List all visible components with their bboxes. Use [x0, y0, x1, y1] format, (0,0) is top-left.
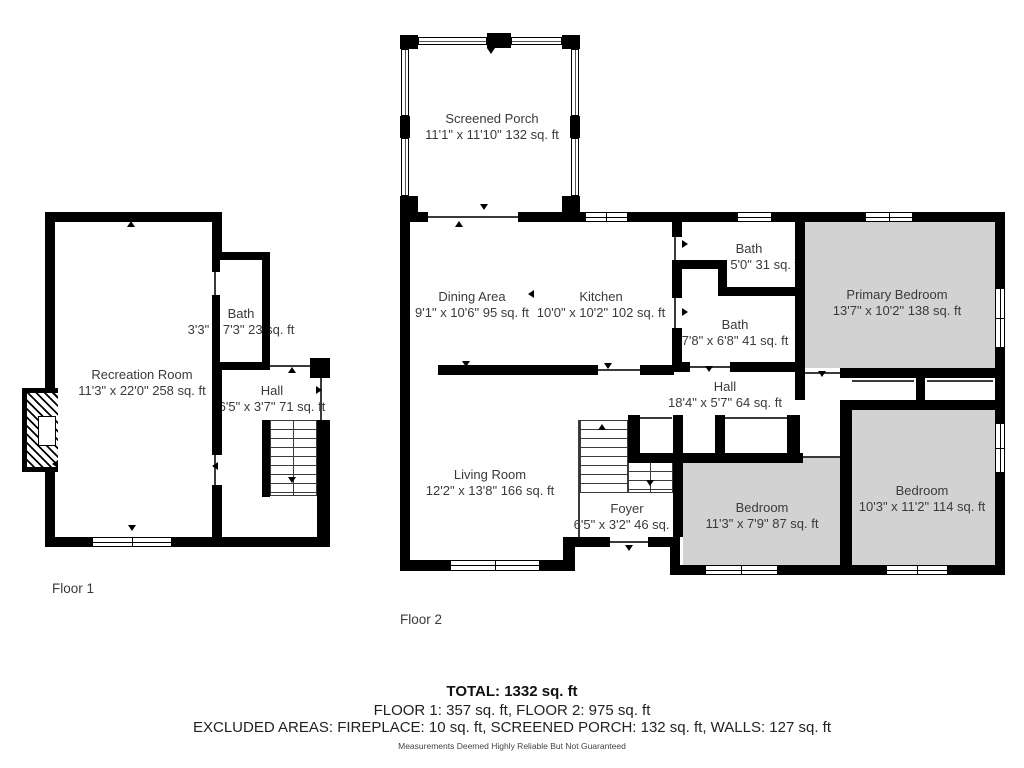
stair-edge-line [578, 420, 580, 537]
door-marker-icon [455, 221, 463, 227]
porch-post [400, 35, 418, 49]
wall [672, 328, 682, 362]
door-marker-icon [212, 462, 218, 470]
wall [640, 365, 674, 375]
room-dims: 12'2" x 13'8" 166 sq. ft [395, 483, 585, 499]
wall [563, 537, 610, 547]
stair-direction-icon [598, 424, 606, 430]
stair-direction-icon [646, 480, 654, 486]
wall [683, 453, 803, 463]
room-dims: 6'5" x 3'7" 71 sq. ft [177, 399, 367, 415]
door-marker-icon [682, 240, 688, 248]
wall [672, 222, 682, 237]
porch-post [562, 196, 580, 212]
opening-line [320, 378, 322, 420]
door-line [214, 272, 216, 295]
screen-wall [511, 37, 562, 45]
room-label-screened-porch: Screened Porch 11'1" x 11'10" 132 sq. ft [397, 111, 587, 143]
door-marker-icon [480, 204, 488, 210]
wall [673, 415, 683, 537]
room-name: Recreation Room [47, 367, 237, 383]
closet-door-line [640, 417, 672, 419]
door-marker-icon [128, 525, 136, 531]
boundary-marker-icon [462, 361, 470, 367]
stairs-up-floor2 [580, 420, 628, 493]
wall [212, 252, 220, 272]
room-name: Hall [630, 379, 820, 395]
room-label-bedroom-114: Bedroom 10'3" x 11'2" 114 sq. ft [827, 483, 1017, 515]
window [995, 423, 1005, 473]
screen-wall [571, 138, 579, 196]
door-marker-icon [818, 371, 826, 377]
floorplan-canvas: Recreation Room 11'3" x 22'0" 258 sq. ft… [0, 0, 1024, 768]
door-line [214, 455, 216, 485]
room-dims: 13'7" x 10'2" 138 sq. ft [802, 303, 992, 319]
window [705, 565, 778, 575]
room-name: Bath [146, 306, 336, 322]
closet-door-line [852, 380, 914, 382]
fireplace-firebox [38, 416, 56, 446]
room-label-bath1: Bath 3'3" x 7'3" 23 sq. ft [146, 306, 336, 338]
room-dims: 18'4" x 5'7" 64 sq. ft [630, 395, 820, 411]
window [585, 212, 628, 222]
screen-wall [401, 49, 409, 116]
porch-post [487, 33, 511, 48]
window [450, 560, 540, 571]
opening-line [428, 216, 518, 218]
wall [212, 362, 270, 370]
wall [628, 453, 683, 463]
window [737, 212, 772, 222]
wall [672, 362, 690, 372]
wall [995, 212, 1005, 575]
closet-door-line [927, 380, 993, 382]
summary-excluded: EXCLUDED AREAS: FIREPLACE: 10 sq. ft, SC… [0, 719, 1024, 736]
window [995, 288, 1005, 348]
window [92, 537, 172, 547]
room-dims: 10'3" x 11'2" 114 sq. ft [827, 499, 1017, 515]
room-label-hall1: Hall 6'5" x 3'7" 71 sq. ft [177, 383, 367, 415]
wall [795, 222, 805, 400]
door-marker-icon [487, 48, 495, 54]
stairs-floor1 [270, 420, 317, 496]
porch-post [562, 35, 580, 49]
wall [628, 212, 737, 222]
window [886, 565, 948, 575]
floor2-caption: Floor 2 [400, 612, 442, 627]
door-marker-icon [52, 460, 58, 468]
porch-post [400, 196, 418, 212]
room-name: Living Room [395, 467, 585, 483]
boundary-marker-icon [528, 290, 534, 298]
screen-wall [571, 49, 579, 116]
wall [772, 212, 865, 222]
room-label-hall2: Hall 18'4" x 5'7" 64 sq. ft [630, 379, 820, 411]
boundary-marker-icon [484, 366, 492, 372]
wall [310, 358, 330, 378]
room-dims: 11'1" x 11'10" 132 sq. ft [397, 127, 587, 143]
stair-direction-icon [288, 477, 296, 483]
room-name: Screened Porch [397, 111, 587, 127]
opening-line [598, 369, 640, 371]
wall [212, 370, 222, 455]
wall [262, 252, 270, 370]
summary-disclaimer: Measurements Deemed Highly Reliable But … [0, 741, 1024, 751]
floor1-caption: Floor 1 [52, 581, 94, 596]
screen-wall [401, 138, 409, 196]
door-marker-icon [288, 367, 296, 373]
door-marker-icon [604, 363, 612, 369]
room-label-primary-bedroom: Primary Bedroom 13'7" x 10'2" 138 sq. ft [802, 287, 992, 319]
room-dims: 3'3" x 7'3" 23 sq. ft [146, 322, 336, 338]
screen-wall [418, 37, 487, 45]
porch-post [400, 116, 410, 138]
wall [518, 212, 585, 222]
porch-post [570, 116, 580, 138]
room-name: Primary Bedroom [802, 287, 992, 303]
door-marker-icon [682, 308, 688, 316]
wall [262, 420, 270, 497]
room-label-living: Living Room 12'2" x 13'8" 166 sq. ft [395, 467, 585, 499]
door-marker-icon [705, 366, 713, 372]
wall [840, 400, 1005, 410]
room-dims: 11'3" x 7'9" 87 sq. ft [667, 516, 857, 532]
room-name: Hall [177, 383, 367, 399]
window [865, 212, 913, 222]
door-marker-icon [625, 545, 633, 551]
summary-floors: FLOOR 1: 357 sq. ft, FLOOR 2: 975 sq. ft [0, 702, 1024, 719]
wall [212, 485, 222, 537]
closet-door-line [725, 417, 787, 419]
wall [730, 362, 800, 372]
wall [45, 212, 55, 547]
door-line [803, 456, 840, 458]
stairs-landing-floor2 [628, 462, 673, 493]
wall [317, 420, 330, 547]
wall [400, 212, 410, 567]
door-marker-icon [127, 221, 135, 227]
door-line [674, 298, 676, 328]
summary-total: TOTAL: 1332 sq. ft [0, 683, 1024, 700]
wall [840, 400, 852, 575]
door-marker-icon [316, 386, 322, 394]
wall [45, 537, 330, 547]
door-line [610, 541, 648, 543]
room-name: Kitchen [506, 289, 696, 305]
wall [913, 212, 1005, 222]
wall [212, 295, 220, 370]
wall [718, 287, 800, 296]
room-name: Bedroom [827, 483, 1017, 499]
